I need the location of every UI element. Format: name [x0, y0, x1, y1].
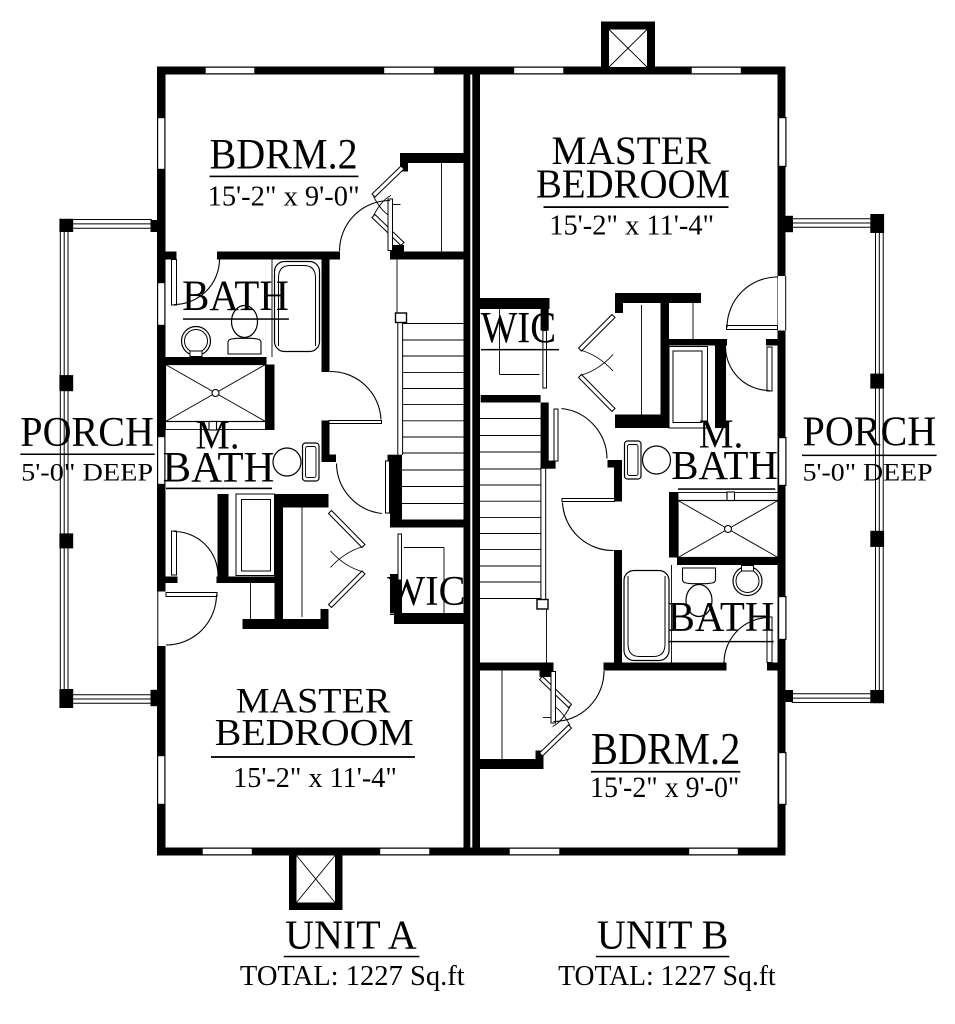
svg-text:TOTAL: 1227 Sq.ft: TOTAL: 1227 Sq.ft [240, 960, 465, 992]
svg-text:15'-2" x 11'-4": 15'-2" x 11'-4" [233, 762, 397, 794]
svg-text:BDRM.2: BDRM.2 [591, 724, 740, 774]
svg-text:BEDROOM: BEDROOM [536, 161, 730, 207]
svg-text:15'-2" x 9'-0": 15'-2" x 9'-0" [208, 181, 360, 213]
svg-text:BATH: BATH [182, 273, 289, 320]
svg-text:15'-2" x 9'-0": 15'-2" x 9'-0" [590, 771, 739, 804]
svg-text:BATH: BATH [668, 595, 775, 641]
svg-text:BDRM.2: BDRM.2 [210, 132, 358, 179]
svg-text:TOTAL: 1227 Sq.ft: TOTAL: 1227 Sq.ft [558, 960, 776, 992]
svg-text:BEDROOM: BEDROOM [215, 712, 414, 754]
svg-text:15'-2" x 11'-4": 15'-2" x 11'-4" [549, 210, 714, 242]
svg-text:PORCH: PORCH [20, 410, 154, 456]
svg-text:PORCH: PORCH [803, 410, 937, 456]
svg-text:BATH: BATH [671, 442, 778, 488]
svg-text:WIC: WIC [481, 303, 556, 352]
svg-text:5'-0" DEEP: 5'-0" DEEP [21, 459, 153, 486]
svg-text:BATH: BATH [163, 444, 275, 491]
svg-text:WIC: WIC [387, 569, 465, 615]
svg-text:UNIT A: UNIT A [285, 912, 417, 958]
svg-text:5'-0" DEEP: 5'-0" DEEP [803, 459, 933, 486]
svg-text:UNIT B: UNIT B [597, 912, 729, 958]
